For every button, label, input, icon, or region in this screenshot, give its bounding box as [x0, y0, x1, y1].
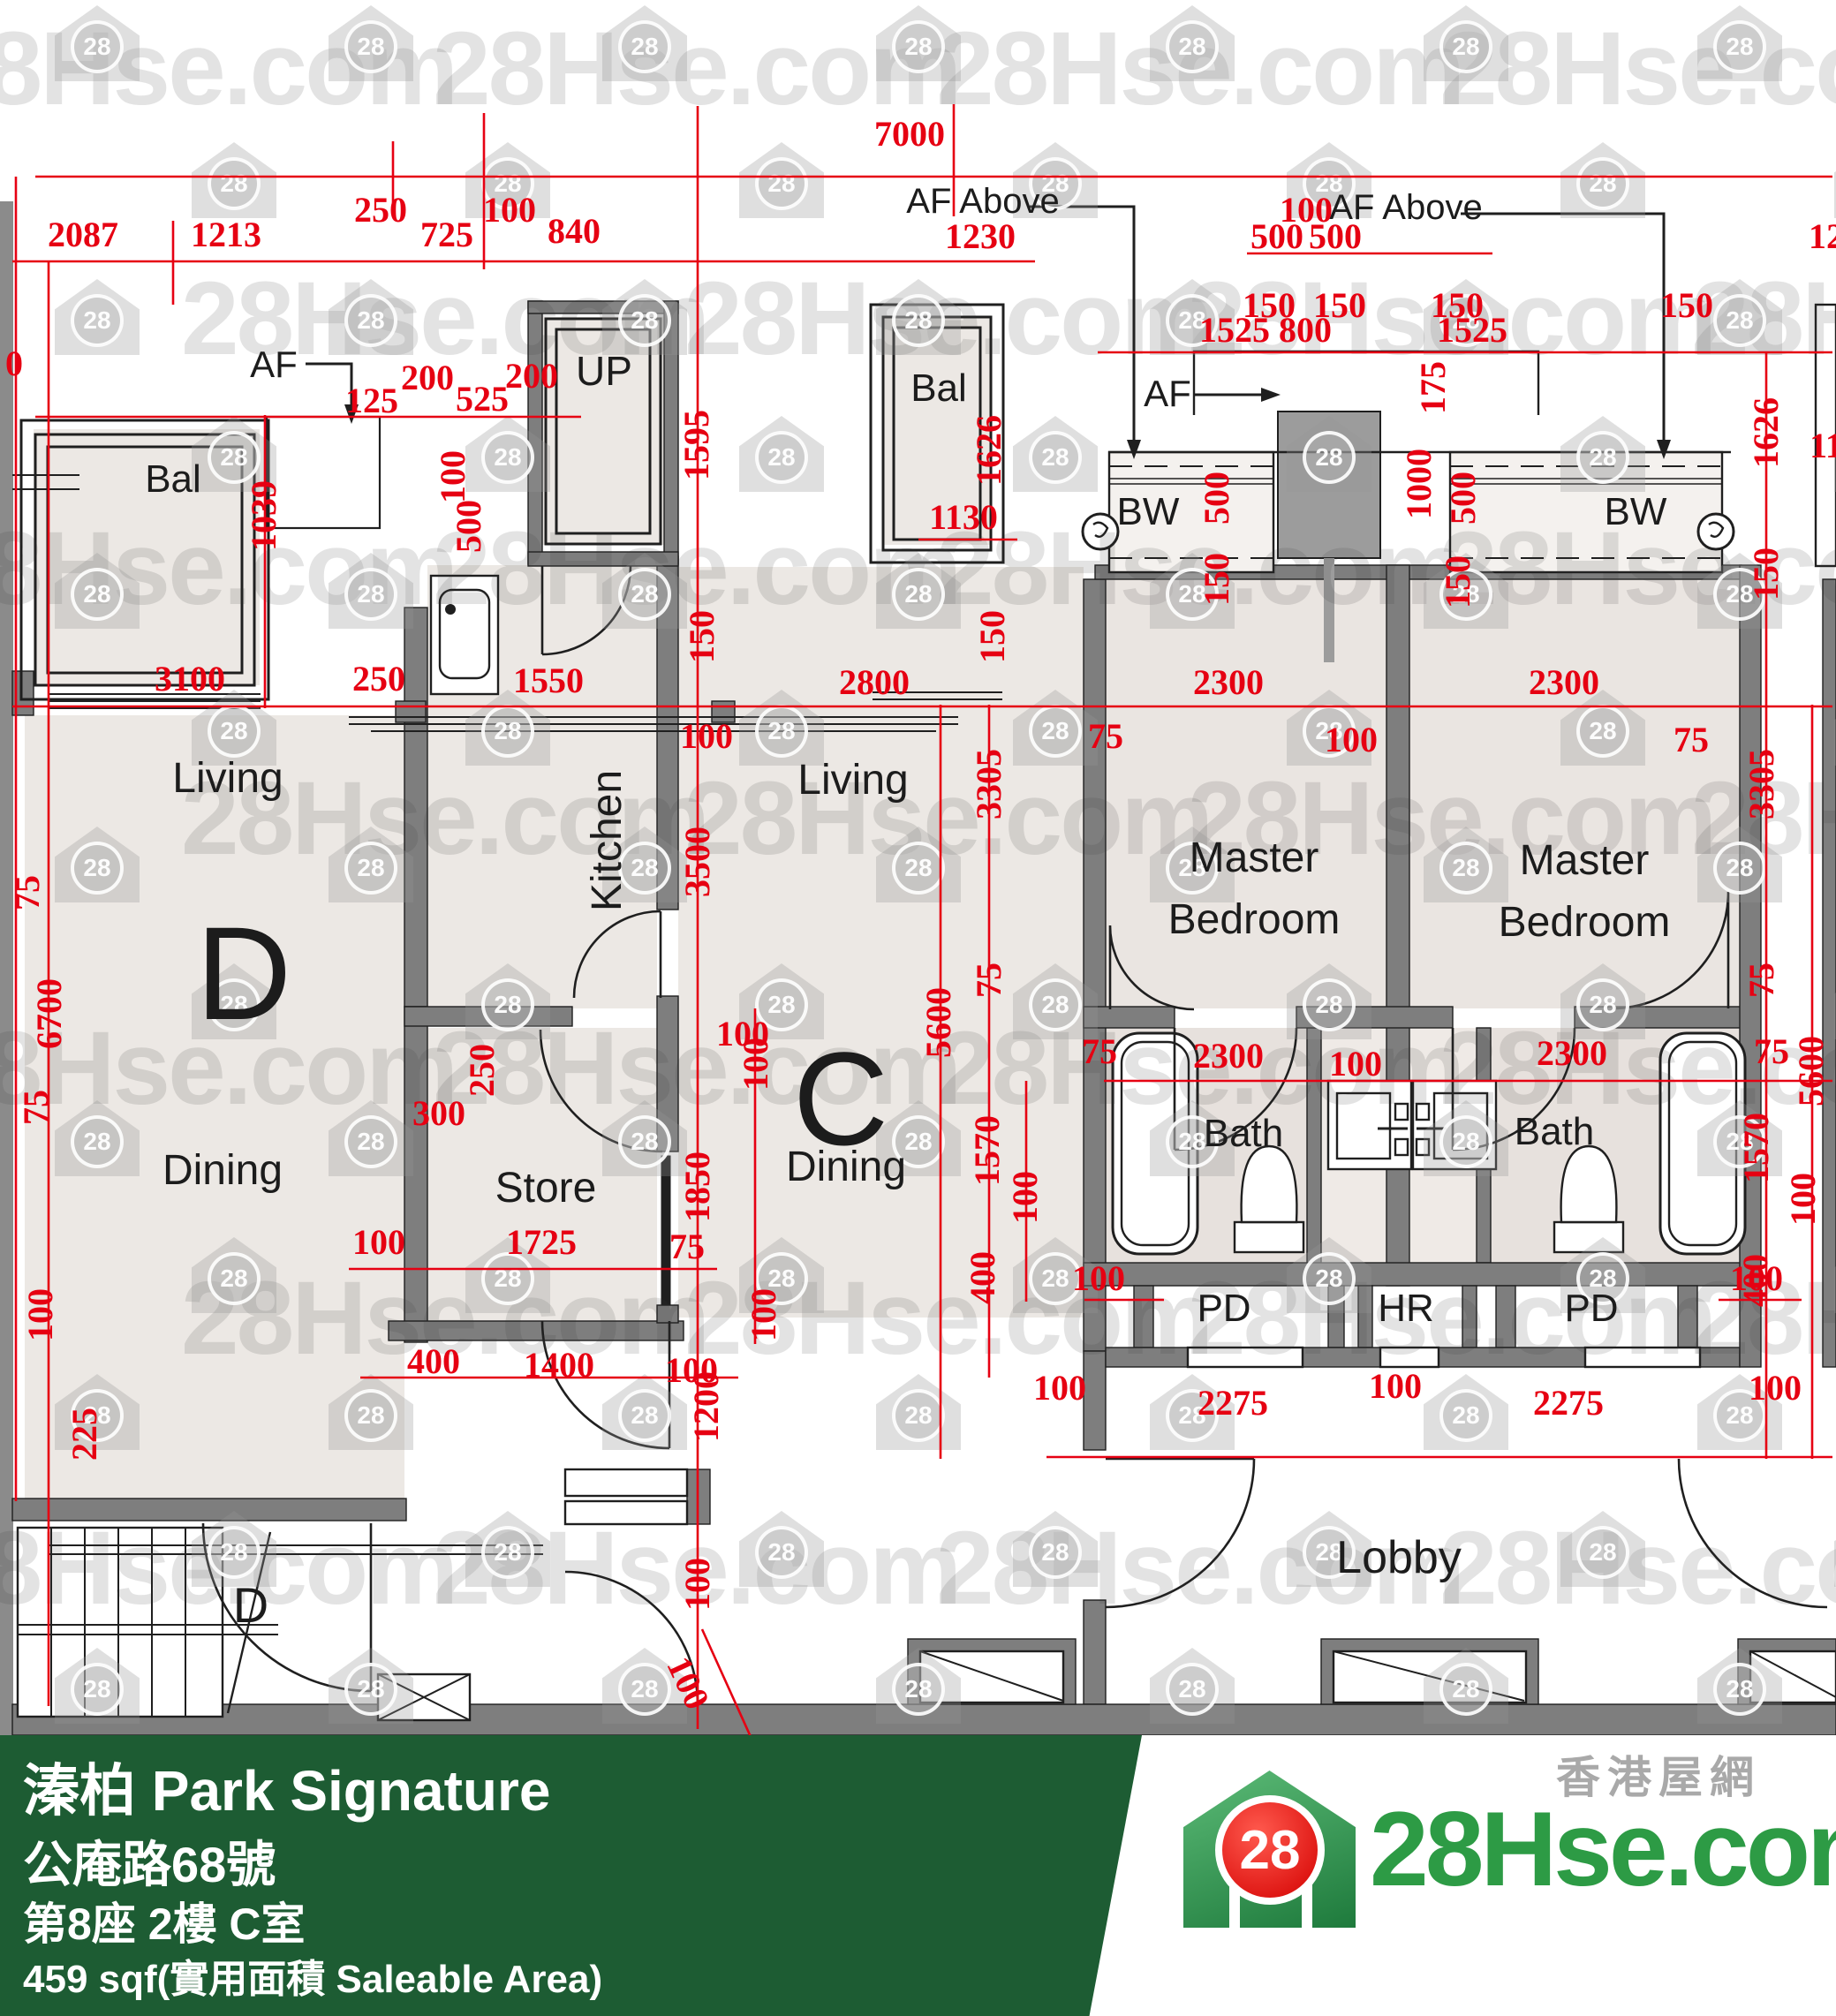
property-unit: 第8座 2樓 C室 [23, 1889, 306, 1952]
property-info-panel: 溱柏 Park Signature 公庵路68號 第8座 2樓 C室 459 s… [0, 1735, 1142, 2016]
28-badge: 28 [1215, 1795, 1325, 1905]
floorplan-drawing [0, 0, 1836, 1735]
property-title: 溱柏 Park Signature [23, 1746, 551, 1827]
floorplan-page: { "watermark": {"brand": "28Hse.com", "b… [0, 0, 1836, 2016]
site-chinese-name: 香港屋網 [1556, 1742, 1761, 1806]
property-area: 459 sqf(實用面積 Saleable Area) [23, 1947, 602, 2004]
property-address: 公庵路68號 [23, 1825, 276, 1897]
footer-bar: 溱柏 Park Signature 公庵路68號 第8座 2樓 C室 459 s… [0, 1735, 1836, 2016]
28hse-house-icon: 28 [1183, 1771, 1356, 1928]
